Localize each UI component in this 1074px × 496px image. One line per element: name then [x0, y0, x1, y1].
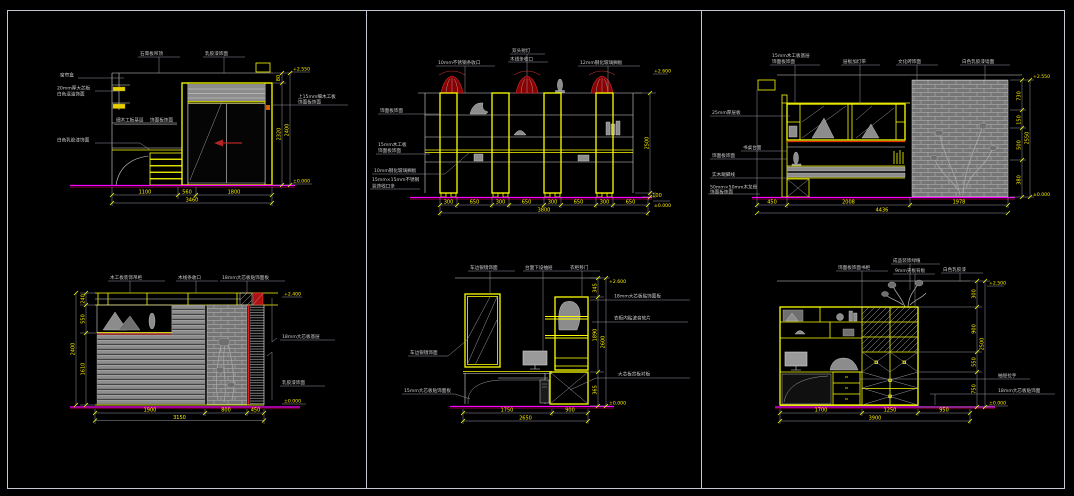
- desk: [463, 372, 552, 405]
- panel-bottom-middle-elevation: 车边银镜饰面 台面下设抽屉 衣柜移门 车边银镜饰面 15mm大芯板贴饰面板 18…: [402, 264, 690, 424]
- svg-text:饰面板饰面: 饰面板饰面: [298, 99, 321, 106]
- svg-text:550: 550: [972, 357, 978, 367]
- elevation-marker: +2.500: [989, 281, 1006, 287]
- svg-text:750: 750: [972, 384, 978, 394]
- svg-text:15mm大芯板贴饰面板: 15mm大芯板贴饰面板: [404, 387, 451, 394]
- svg-text:饰面板饰面: 饰面板饰面: [150, 117, 173, 124]
- svg-text:18mm大芯板贴饰面: 18mm大芯板贴饰面: [998, 387, 1041, 394]
- svg-text:1900: 1900: [144, 408, 157, 414]
- svg-text:饰面板饰面: 饰面板饰面: [772, 58, 795, 65]
- svg-text:900: 900: [565, 408, 575, 414]
- svg-text:15mm木工板: 15mm木工板: [378, 141, 407, 148]
- elevation-marker: +2.600: [654, 69, 671, 75]
- sheet-border: [8, 11, 1065, 489]
- blind-panel: [250, 305, 264, 405]
- elevation-marker: ±0.000: [654, 203, 671, 209]
- svg-text:衣柜移门: 衣柜移门: [570, 264, 589, 271]
- svg-text:650: 650: [470, 200, 480, 206]
- plant-icon: [882, 280, 927, 307]
- svg-text:80: 80: [276, 75, 282, 81]
- low-cabinet: [782, 374, 831, 404]
- svg-text:15mm×15mm不锈钢: 15mm×15mm不锈钢: [372, 176, 420, 183]
- svg-text:1800: 1800: [228, 190, 241, 196]
- svg-text:实木踢脚线: 实木踢脚线: [712, 171, 735, 178]
- svg-text:550: 550: [81, 314, 87, 324]
- brick-wall: [912, 80, 1008, 197]
- svg-text:白色乳胶漆饰面: 白色乳胶漆饰面: [57, 137, 90, 144]
- svg-text:4436: 4436: [876, 208, 889, 214]
- svg-text:双头射灯: 双头射灯: [512, 47, 531, 54]
- svg-text:乳胶漆饰面: 乳胶漆饰面: [282, 379, 305, 386]
- svg-text:365: 365: [593, 385, 599, 395]
- svg-text:300: 300: [600, 200, 610, 206]
- svg-text:800: 800: [221, 408, 231, 414]
- svg-text:2008: 2008: [842, 200, 855, 206]
- svg-text:3150: 3150: [173, 415, 186, 421]
- panel-top-middle-elevation: 饰面板饰面 15mm木工板 饰面板饰面 10mm钢化玻璃搁板 15mm×15mm…: [370, 47, 671, 216]
- books-icon: [894, 150, 903, 164]
- elevation-marker: ±0.000: [293, 179, 310, 185]
- statue-icon: [556, 79, 565, 93]
- svg-text:白色乳胶漆: 白色乳胶漆: [943, 266, 966, 273]
- svg-text:1890: 1890: [593, 329, 599, 342]
- svg-text:730: 730: [1017, 91, 1023, 101]
- svg-text:1100: 1100: [139, 190, 152, 196]
- svg-text:2550: 2550: [1025, 132, 1031, 145]
- svg-text:衣柜内贴波音软片: 衣柜内贴波音软片: [614, 315, 651, 322]
- wood-strip-wall: [97, 335, 205, 405]
- svg-text:1700: 1700: [815, 408, 828, 414]
- svg-text:装饰收口条: 装饰收口条: [372, 183, 395, 190]
- svg-text:窗帘盒: 窗帘盒: [60, 72, 74, 79]
- svg-text:抽屉拉手: 抽屉拉手: [998, 372, 1017, 379]
- door-panel: [182, 83, 272, 185]
- svg-text:饰面板饰面: 饰面板饰面: [380, 107, 403, 114]
- wall-lamp-icon: [589, 71, 615, 93]
- svg-text:300: 300: [548, 200, 558, 206]
- svg-text:2400: 2400: [71, 343, 77, 356]
- svg-text:1750: 1750: [501, 408, 514, 414]
- svg-text:650: 650: [522, 200, 532, 206]
- svg-text:20mm厚大芯板: 20mm厚大芯板: [57, 85, 91, 92]
- wardrobe-cabinet: [545, 297, 588, 370]
- cushion-icon: [830, 358, 858, 370]
- louver-band: [188, 84, 265, 101]
- desk-band: [787, 167, 905, 171]
- panel-bottom-right-elevation: 饰面板饰面书柜 成品装饰绿植 9mm夹板背板 白色乳胶漆 抽屉拉手 18mm大芯…: [775, 257, 1055, 424]
- svg-text:12mm钢化玻璃搁板: 12mm钢化玻璃搁板: [580, 59, 623, 66]
- svg-text:木工板装饰吊柜: 木工板装饰吊柜: [110, 274, 143, 281]
- svg-text:层板加灯带: 层板加灯带: [843, 58, 866, 65]
- svg-text:18mm大芯板基层: 18mm大芯板基层: [282, 333, 320, 340]
- elevation-marker: ±0.000: [609, 401, 626, 407]
- mirror-panel: [465, 294, 500, 367]
- svg-text:白色乳胶漆墙面: 白色乳胶漆墙面: [962, 58, 995, 65]
- elevation-marker: +2.550: [1033, 74, 1050, 80]
- svg-text:3900: 3900: [869, 416, 882, 422]
- svg-text:成品装饰绿植: 成品装饰绿植: [893, 257, 921, 264]
- svg-text:2600: 2600: [601, 336, 607, 349]
- svg-text:上15mm细木工板: 上15mm细木工板: [298, 93, 336, 100]
- svg-text:3460: 3460: [186, 198, 199, 204]
- panel-top-right-elevation: 15mm木工板基层 饰面板饰面 层板加灯带 文化砖饰面 白色乳胶漆墙面 25mm…: [708, 52, 1050, 215]
- curtain-box-section: [256, 63, 270, 72]
- pillar-feet: [441, 193, 612, 197]
- svg-text:饰面板饰面: 饰面板饰面: [712, 152, 735, 159]
- svg-text:1610: 1610: [81, 363, 87, 376]
- svg-text:150: 150: [1017, 115, 1023, 125]
- svg-text:18mm大芯板贴饰面板: 18mm大芯板贴饰面板: [222, 274, 269, 281]
- bowl-icon: [514, 131, 526, 136]
- svg-text:3800: 3800: [538, 208, 551, 214]
- display-niche: [97, 305, 172, 334]
- clothes-icon: [559, 301, 581, 330]
- svg-text:650: 650: [574, 200, 584, 206]
- svg-text:书桌台面: 书桌台面: [743, 144, 762, 151]
- svg-text:10mm不锈钢条收口: 10mm不锈钢条收口: [438, 59, 481, 66]
- svg-text:饰面板饰面: 饰面板饰面: [378, 147, 401, 154]
- svg-text:1250: 1250: [884, 408, 897, 414]
- svg-text:300: 300: [444, 200, 454, 206]
- annotation: 乳胶漆饰面: [205, 50, 228, 57]
- panel-top-left-elevation: 石膏板吊顶 乳胶漆饰面 窗帘盒 20mm厚大芯板 白色混油饰面 细木工板基层 饰…: [57, 50, 348, 206]
- statue-icon: [792, 152, 801, 166]
- svg-text:650: 650: [626, 200, 636, 206]
- svg-text:白色混油饰面: 白色混油饰面: [57, 91, 85, 98]
- hanging-cabinet-band: [95, 293, 278, 305]
- svg-text:2650: 2650: [519, 416, 532, 422]
- drawer-stack: [150, 153, 182, 185]
- pc-tower-icon: [540, 380, 549, 403]
- elevation-marker: ±0.000: [1033, 192, 1050, 198]
- elevation-marker: ±0.000: [989, 401, 1006, 407]
- svg-text:饰面板饰面: 饰面板饰面: [710, 189, 733, 196]
- wood-strip-wall: [172, 305, 205, 335]
- svg-text:10mm钢化玻璃搁板: 10mm钢化玻璃搁板: [374, 167, 417, 174]
- curtain-box-section: [758, 80, 775, 90]
- svg-text:15mm木工板基层: 15mm木工板基层: [772, 52, 810, 59]
- elevation-marker: +2.550: [293, 67, 310, 73]
- drawing-canvas: 石膏板吊顶 乳胶漆饰面 窗帘盒 20mm厚大芯板 白色混油饰面 细木工板基层 饰…: [0, 0, 1074, 496]
- elevation-marker: +2.600: [609, 279, 626, 285]
- svg-text:车边银镜饰面: 车边银镜饰面: [410, 349, 438, 356]
- svg-text:木线条收口: 木线条收口: [510, 56, 533, 63]
- svg-text:文化砖饰面: 文化砖饰面: [898, 58, 921, 65]
- monitor-icon: [785, 352, 807, 370]
- svg-text:300: 300: [496, 200, 506, 206]
- svg-text:25mm厚层板: 25mm厚层板: [712, 109, 741, 116]
- glass-display-cabinet: [787, 104, 905, 140]
- svg-text:100: 100: [652, 193, 662, 199]
- svg-text:饰面板饰面书柜: 饰面板饰面书柜: [838, 264, 871, 271]
- cad-sheet: 石膏板吊顶 乳胶漆饰面 窗帘盒 20mm厚大芯板 白色混油饰面 细木工板基层 饰…: [0, 0, 1074, 496]
- display-pillars: [440, 93, 613, 193]
- svg-text:1978: 1978: [953, 200, 966, 206]
- svg-text:950: 950: [939, 408, 949, 414]
- brick-column: [207, 305, 247, 405]
- svg-text:2500: 2500: [645, 137, 651, 150]
- monitor-icon: [523, 351, 547, 369]
- svg-text:车边银镜饰面: 车边银镜饰面: [470, 264, 498, 271]
- elevation-marker: ±0.000: [284, 399, 301, 405]
- svg-text:240: 240: [81, 294, 87, 304]
- svg-text:9mm夹板背板: 9mm夹板背板: [895, 267, 926, 274]
- svg-text:2500: 2500: [980, 338, 986, 351]
- svg-text:900: 900: [972, 324, 978, 334]
- svg-text:50mm×50mm木龙骨: 50mm×50mm木龙骨: [710, 184, 758, 191]
- panel-bottom-left-elevation: 木工板装饰吊柜 木线条收口 18mm大芯板贴饰面板 240 550 1610 2…: [70, 274, 335, 424]
- svg-text:大芯板背板衬板: 大芯板背板衬板: [618, 371, 651, 378]
- x-brace-cabinet: [550, 372, 588, 404]
- drawer-unit: [833, 372, 860, 405]
- svg-text:细木工板基层: 细木工板基层: [116, 117, 144, 124]
- svg-text:560: 560: [182, 190, 192, 196]
- annotation: 石膏板吊顶: [140, 50, 163, 57]
- svg-text:18mm大芯板贴饰面板: 18mm大芯板贴饰面板: [614, 293, 661, 300]
- svg-text:2320: 2320: [277, 128, 283, 141]
- svg-text:2400: 2400: [285, 124, 291, 137]
- wall-blocking: [113, 87, 125, 91]
- svg-text:500: 500: [1017, 140, 1023, 150]
- elevation-marker: +2.400: [284, 292, 301, 298]
- svg-text:345: 345: [593, 283, 599, 293]
- plant-icon: [470, 103, 488, 114]
- svg-text:380: 380: [1017, 175, 1023, 185]
- svg-text:台面下设抽屉: 台面下设抽屉: [525, 264, 553, 271]
- wall-lamp-icon: [439, 71, 465, 93]
- svg-text:450: 450: [767, 200, 777, 206]
- svg-text:300: 300: [972, 289, 978, 299]
- svg-text:木线条收口: 木线条收口: [178, 274, 201, 281]
- svg-text:450: 450: [251, 408, 261, 414]
